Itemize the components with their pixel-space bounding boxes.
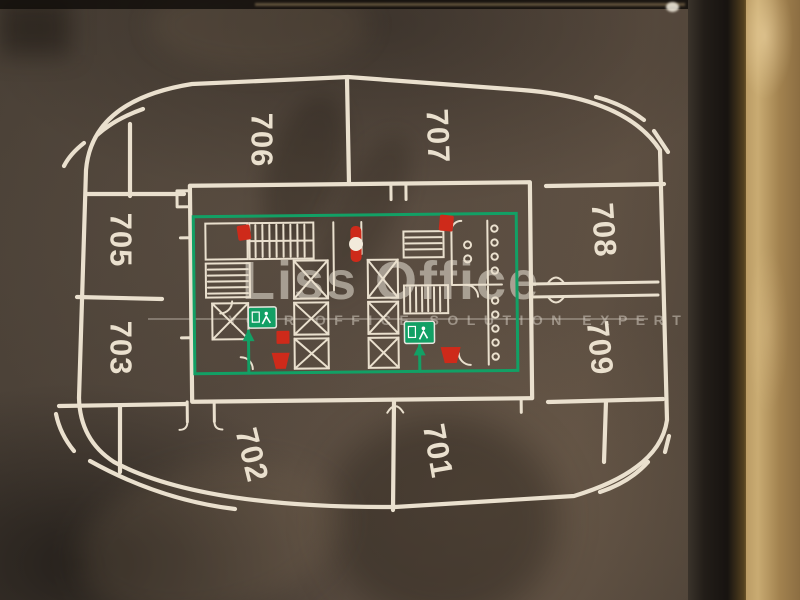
room-label-703: 703 (104, 321, 139, 376)
room-label-709: 709 (580, 319, 621, 377)
floor-plan-drawing: 706 707 705 703 708 709 702 701 (0, 0, 800, 600)
toilet-fixtures (451, 221, 503, 366)
room-label-705: 705 (104, 213, 139, 268)
light-glint-dot (666, 2, 679, 12)
gold-frame (746, 0, 800, 600)
stair-treads (403, 231, 448, 313)
room-label-701: 701 (416, 421, 460, 481)
frame-shadow-edge (688, 0, 746, 600)
room-label-706: 706 (245, 113, 280, 168)
room-divider-lines (59, 79, 664, 510)
building-outline (56, 77, 669, 509)
elevator-box (368, 260, 399, 368)
core-walls (177, 182, 533, 430)
frame-top-glint (255, 3, 685, 6)
room-label-702: 702 (228, 424, 275, 486)
exit-sign-icon (404, 321, 434, 343)
you-are-here-marker (349, 226, 363, 262)
door-swing-arc (241, 357, 253, 369)
room-label-707: 707 (420, 108, 457, 164)
photographed-floorplan-sign: Liss Office YOUR OFFICE SOLUTION EXPERT (0, 0, 800, 600)
exit-sign-icon (248, 307, 276, 328)
room-label-708: 708 (585, 201, 624, 258)
